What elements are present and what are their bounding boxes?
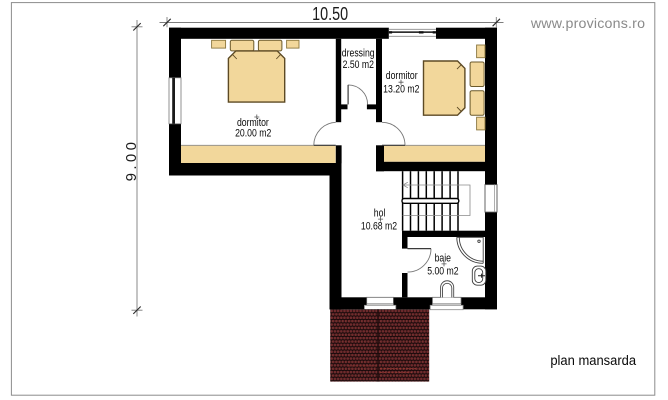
svg-text:2.50 m2: 2.50 m2 xyxy=(343,59,374,71)
svg-text:dressing: dressing xyxy=(342,48,375,60)
svg-text:baie: baie xyxy=(435,253,451,265)
svg-text:13.20 m2: 13.20 m2 xyxy=(383,84,419,96)
svg-text:5.00 m2: 5.00 m2 xyxy=(427,266,458,278)
svg-text:9.00: 9.00 xyxy=(123,139,140,182)
svg-text:10.50: 10.50 xyxy=(312,4,348,24)
svg-text:hol: hol xyxy=(374,208,386,220)
svg-text:20.00 m2: 20.00 m2 xyxy=(235,128,271,140)
svg-text:dormitor: dormitor xyxy=(386,70,419,82)
svg-text:www.provicons.ro: www.provicons.ro xyxy=(530,16,645,32)
svg-text:10.68 m2: 10.68 m2 xyxy=(361,221,397,233)
svg-text:plan mansarda: plan mansarda xyxy=(550,352,636,367)
